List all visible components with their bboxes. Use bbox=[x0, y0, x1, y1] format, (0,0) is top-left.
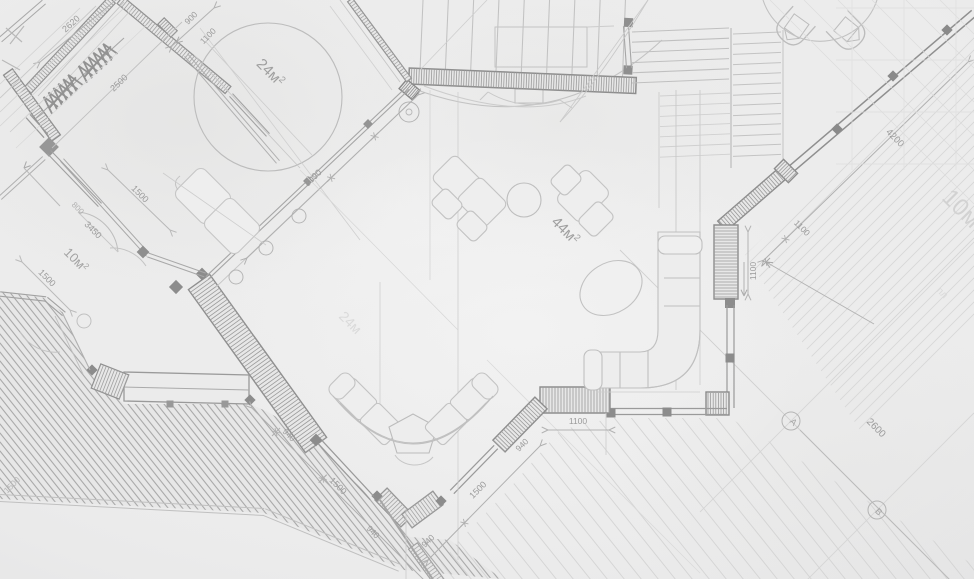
svg-text:1100: 1100 bbox=[569, 416, 588, 426]
svg-text:1100: 1100 bbox=[748, 262, 758, 281]
